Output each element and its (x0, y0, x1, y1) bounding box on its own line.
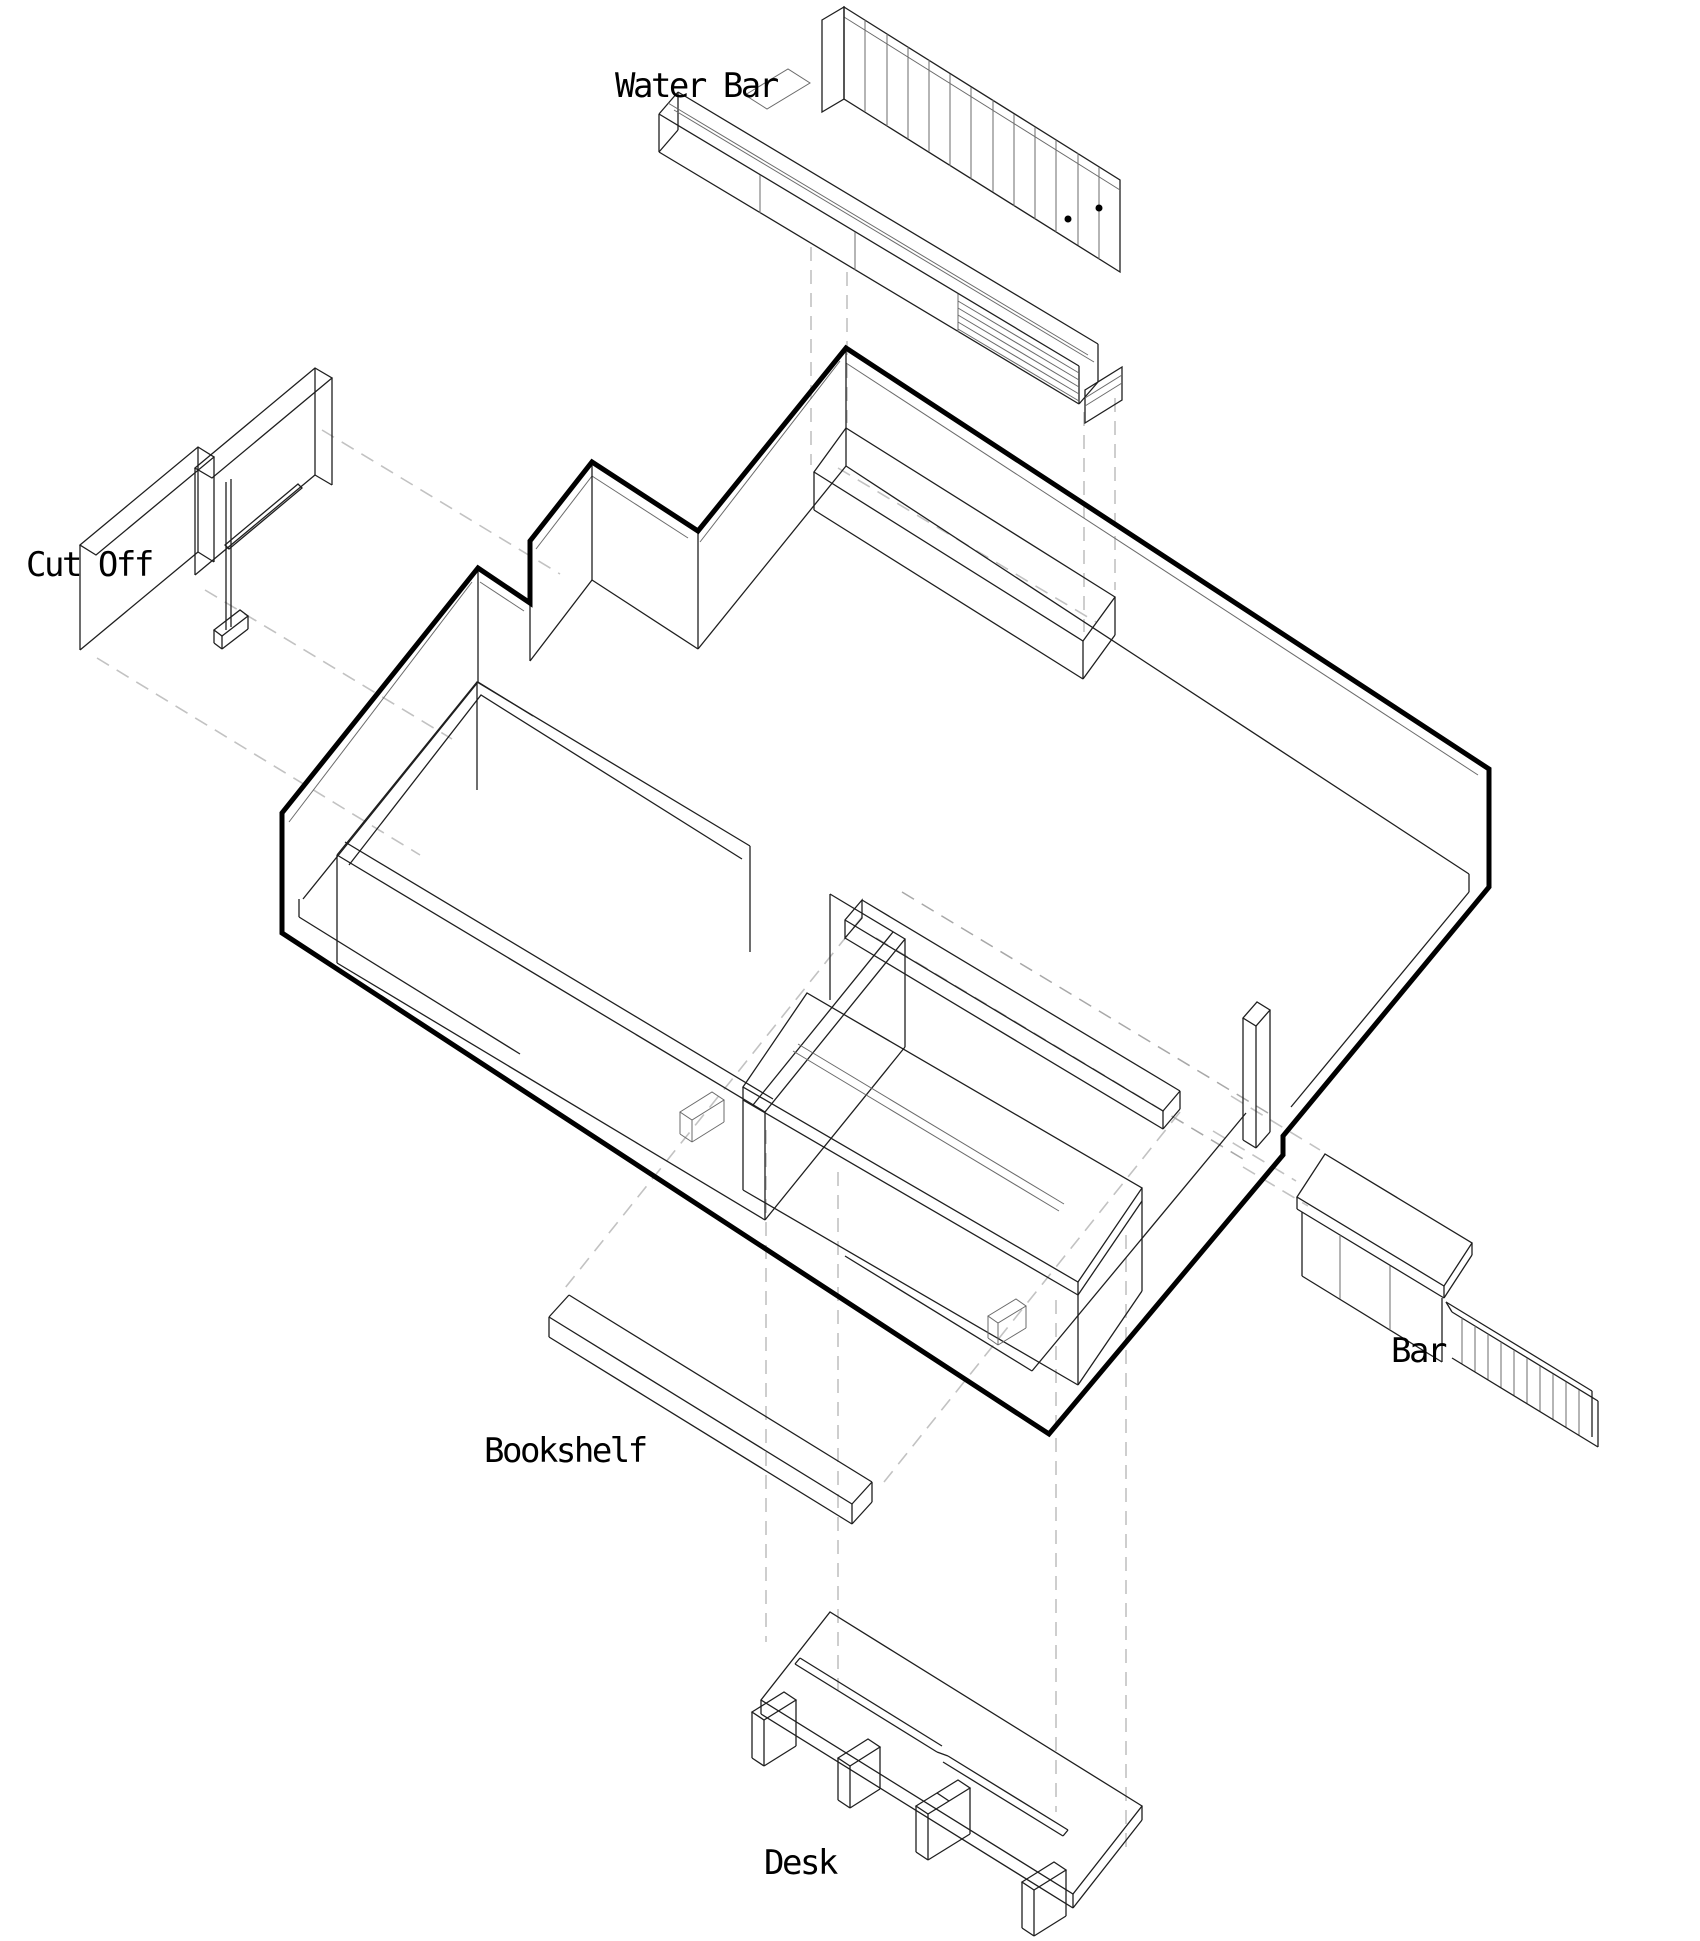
label-desk: Desk (764, 1843, 838, 1883)
bookshelf-piece (549, 1295, 872, 1524)
bookshelf-in-plan (845, 900, 1180, 1129)
label-bar: Bar (1391, 1331, 1447, 1371)
diagram-page: Water Bar Cut Off Bookshelf Bar Desk (0, 0, 1700, 1941)
room-walls (289, 348, 1478, 1371)
labels: Water Bar Cut Off Bookshelf Bar Desk (26, 66, 1447, 1883)
bar-piece (1297, 1154, 1598, 1447)
label-bookshelf: Bookshelf (484, 1431, 646, 1471)
desk-in-plan (743, 993, 1142, 1385)
water-bar-in-plan (814, 428, 1115, 679)
room-outline (282, 348, 1489, 1434)
door-pillar (1243, 1002, 1270, 1148)
cut-off-piece (80, 368, 332, 650)
diagram-canvas: Water Bar Cut Off Bookshelf Bar Desk (0, 0, 1700, 1941)
label-water-bar: Water Bar (615, 66, 779, 106)
projection-lines (97, 247, 1320, 1850)
label-cut-off: Cut Off (26, 545, 152, 585)
desk-piece (752, 1612, 1142, 1936)
interior-enclosure (337, 682, 905, 1220)
